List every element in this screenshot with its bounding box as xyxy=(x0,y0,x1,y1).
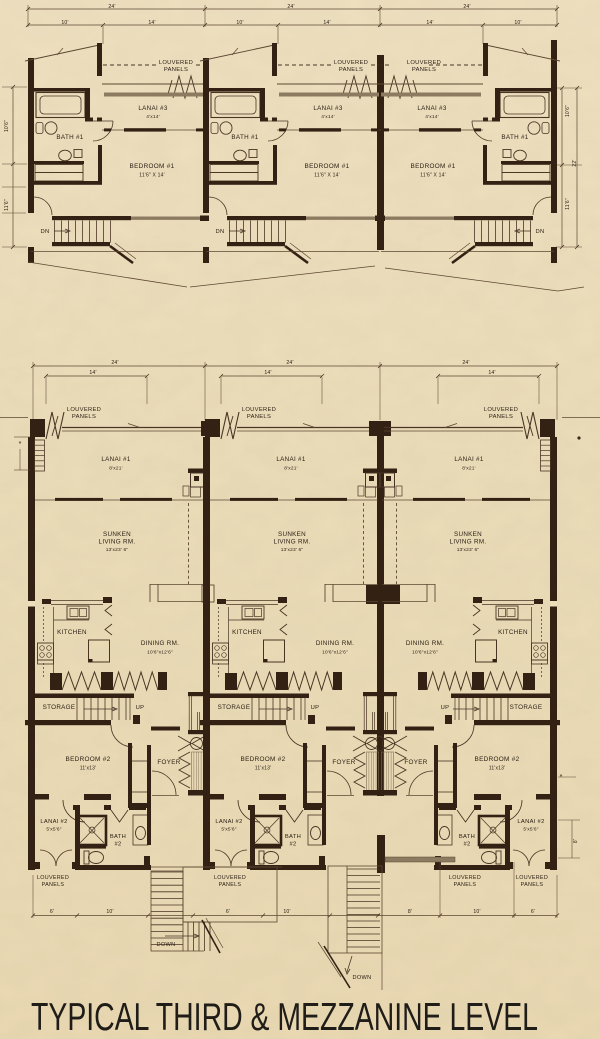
svg-text:10': 10' xyxy=(473,909,480,915)
svg-text:BEDROOM #1: BEDROOM #1 xyxy=(130,163,175,170)
svg-text:LOUVERED: LOUVERED xyxy=(449,875,481,881)
svg-text:STORAGE: STORAGE xyxy=(510,704,543,711)
svg-text:DOWN: DOWN xyxy=(353,975,372,981)
svg-text:LIVING RM.: LIVING RM. xyxy=(450,539,487,546)
svg-text:22': 22' xyxy=(572,159,578,166)
svg-text:11'x13': 11'x13' xyxy=(80,766,97,772)
svg-text:PANELS: PANELS xyxy=(247,414,271,420)
svg-text:UP: UP xyxy=(311,705,320,711)
svg-text:11'6" X 14': 11'6" X 14' xyxy=(314,173,340,179)
svg-text:UP: UP xyxy=(136,705,145,711)
svg-text:BATH: BATH xyxy=(285,834,301,840)
svg-text:5'x5'6": 5'x5'6" xyxy=(523,827,538,833)
svg-text:LANAI #3: LANAI #3 xyxy=(138,105,168,112)
svg-text:BATH #1: BATH #1 xyxy=(231,134,258,141)
svg-text:BEDROOM #2: BEDROOM #2 xyxy=(241,756,286,763)
svg-text:TYPICAL THIRD & MEZZANINE LEVE: TYPICAL THIRD & MEZZANINE LEVEL xyxy=(31,996,538,1039)
svg-text:DN: DN xyxy=(216,229,225,235)
svg-text:LANAI #2: LANAI #2 xyxy=(517,819,544,825)
svg-text:PANELS: PANELS xyxy=(412,67,436,73)
svg-text:STORAGE: STORAGE xyxy=(218,704,251,711)
svg-text:FOYER: FOYER xyxy=(404,759,427,766)
svg-text:PANELS: PANELS xyxy=(454,882,477,888)
svg-text:LANAI #1: LANAI #1 xyxy=(454,456,484,463)
svg-text:6': 6' xyxy=(531,909,535,915)
svg-text:LOUVERED: LOUVERED xyxy=(214,875,246,881)
svg-text:DINING RM.: DINING RM. xyxy=(406,640,444,647)
svg-text:LOUVERED: LOUVERED xyxy=(37,875,69,881)
svg-text:13'x23' 6": 13'x23' 6" xyxy=(281,547,304,553)
svg-text:14': 14' xyxy=(488,370,495,376)
svg-text:10': 10' xyxy=(283,909,290,915)
svg-text:8': 8' xyxy=(408,909,412,915)
svg-text:11'6" X 14': 11'6" X 14' xyxy=(420,173,446,179)
svg-text:10'6": 10'6" xyxy=(565,105,571,117)
svg-text:24': 24' xyxy=(462,360,469,366)
svg-text:5'x5'6": 5'x5'6" xyxy=(221,827,236,833)
svg-text:6': 6' xyxy=(50,909,54,915)
svg-text:LOUVERED: LOUVERED xyxy=(484,407,518,413)
svg-text:10': 10' xyxy=(106,909,113,915)
svg-text:KITCHEN: KITCHEN xyxy=(232,629,262,636)
svg-text:#2: #2 xyxy=(463,842,470,848)
svg-text:8'x21': 8'x21' xyxy=(284,466,297,472)
svg-text:FOYER: FOYER xyxy=(332,759,355,766)
svg-text:LIVING RM.: LIVING RM. xyxy=(274,539,311,546)
svg-text:PANELS: PANELS xyxy=(42,882,65,888)
svg-text:BEDROOM #1: BEDROOM #1 xyxy=(411,163,456,170)
svg-text:LANAI #1: LANAI #1 xyxy=(101,456,131,463)
svg-text:LANAI #3: LANAI #3 xyxy=(313,105,343,112)
svg-text:8'x21': 8'x21' xyxy=(462,466,475,472)
svg-text:10': 10' xyxy=(236,20,243,26)
svg-text:DN: DN xyxy=(41,229,50,235)
svg-text:DOWN: DOWN xyxy=(157,942,176,948)
svg-text:24': 24' xyxy=(286,360,293,366)
svg-text:LANAI #1: LANAI #1 xyxy=(276,456,306,463)
svg-text:#2: #2 xyxy=(114,842,121,848)
svg-text:24': 24' xyxy=(287,4,294,10)
svg-text:KITCHEN: KITCHEN xyxy=(498,629,528,636)
svg-text:6': 6' xyxy=(226,909,230,915)
svg-text:UP: UP xyxy=(441,705,450,711)
svg-text:LOUVERED: LOUVERED xyxy=(334,60,368,66)
svg-text:10'6"x12'6": 10'6"x12'6" xyxy=(322,650,348,656)
svg-text:24': 24' xyxy=(108,4,115,10)
svg-text:PANELS: PANELS xyxy=(72,414,96,420)
svg-text:LANAI #2: LANAI #2 xyxy=(40,819,67,825)
svg-text:BEDROOM #1: BEDROOM #1 xyxy=(305,163,350,170)
svg-text:BATH: BATH xyxy=(459,834,475,840)
svg-text:10': 10' xyxy=(61,20,68,26)
svg-text:BEDROOM #2: BEDROOM #2 xyxy=(66,756,111,763)
svg-text:4'x14': 4'x14' xyxy=(321,114,334,120)
svg-text:10': 10' xyxy=(514,20,521,26)
svg-text:24': 24' xyxy=(463,4,470,10)
svg-text:13'x23' 6": 13'x23' 6" xyxy=(106,547,129,553)
svg-text:*: * xyxy=(19,441,22,448)
svg-text:4'x14': 4'x14' xyxy=(146,114,159,120)
svg-text:BATH: BATH xyxy=(110,834,126,840)
svg-text:LANAI #3: LANAI #3 xyxy=(417,105,447,112)
svg-text:24': 24' xyxy=(111,360,118,366)
svg-text:PANELS: PANELS xyxy=(339,67,363,73)
svg-text:LIVING RM.: LIVING RM. xyxy=(99,539,136,546)
svg-text:8': 8' xyxy=(573,839,579,843)
svg-text:FOYER: FOYER xyxy=(157,759,180,766)
svg-text:11'6" X 14': 11'6" X 14' xyxy=(139,173,165,179)
svg-text:13'x23' 6": 13'x23' 6" xyxy=(457,547,480,553)
svg-text:8'x21': 8'x21' xyxy=(109,466,122,472)
svg-text:5'x5'6": 5'x5'6" xyxy=(46,827,61,833)
svg-text:SUNKEN: SUNKEN xyxy=(454,531,482,538)
svg-text:BATH #1: BATH #1 xyxy=(501,134,528,141)
svg-text:14': 14' xyxy=(323,20,330,26)
svg-text:11'6": 11'6" xyxy=(565,198,571,210)
svg-text:BEDROOM #2: BEDROOM #2 xyxy=(475,756,520,763)
svg-text:PANELS: PANELS xyxy=(521,882,544,888)
svg-text:LANAI #2: LANAI #2 xyxy=(215,819,242,825)
svg-text:SUNKEN: SUNKEN xyxy=(278,531,306,538)
svg-text:14': 14' xyxy=(148,20,155,26)
svg-text:BATH #1: BATH #1 xyxy=(56,134,83,141)
svg-text:LOUVERED: LOUVERED xyxy=(159,60,193,66)
svg-text:11'x13': 11'x13' xyxy=(255,766,272,772)
svg-text:10'6"x12'6": 10'6"x12'6" xyxy=(412,650,438,656)
svg-text:LOUVERED: LOUVERED xyxy=(516,875,548,881)
svg-text:LOUVERED: LOUVERED xyxy=(67,407,101,413)
svg-text:11'x13': 11'x13' xyxy=(489,766,506,772)
svg-text:4'x14': 4'x14' xyxy=(425,114,438,120)
svg-text:KITCHEN: KITCHEN xyxy=(57,629,87,636)
svg-text:11'6": 11'6" xyxy=(4,199,10,211)
svg-text:*: * xyxy=(560,774,563,781)
svg-text:#2: #2 xyxy=(289,842,296,848)
svg-text:14': 14' xyxy=(426,20,433,26)
svg-text:PANELS: PANELS xyxy=(164,67,188,73)
svg-text:DINING RM.: DINING RM. xyxy=(141,640,179,647)
svg-text:SUNKEN: SUNKEN xyxy=(103,531,131,538)
svg-text:14': 14' xyxy=(89,370,96,376)
svg-text:PANELS: PANELS xyxy=(219,882,242,888)
svg-text:STORAGE: STORAGE xyxy=(43,704,76,711)
svg-text:PANELS: PANELS xyxy=(489,414,513,420)
svg-text:10'6": 10'6" xyxy=(4,120,10,132)
svg-text:DN: DN xyxy=(536,229,545,235)
svg-text:14': 14' xyxy=(264,370,271,376)
svg-text:10'6"x12'6": 10'6"x12'6" xyxy=(147,650,173,656)
svg-text:LOUVERED: LOUVERED xyxy=(242,407,276,413)
svg-text:DINING RM.: DINING RM. xyxy=(316,640,354,647)
